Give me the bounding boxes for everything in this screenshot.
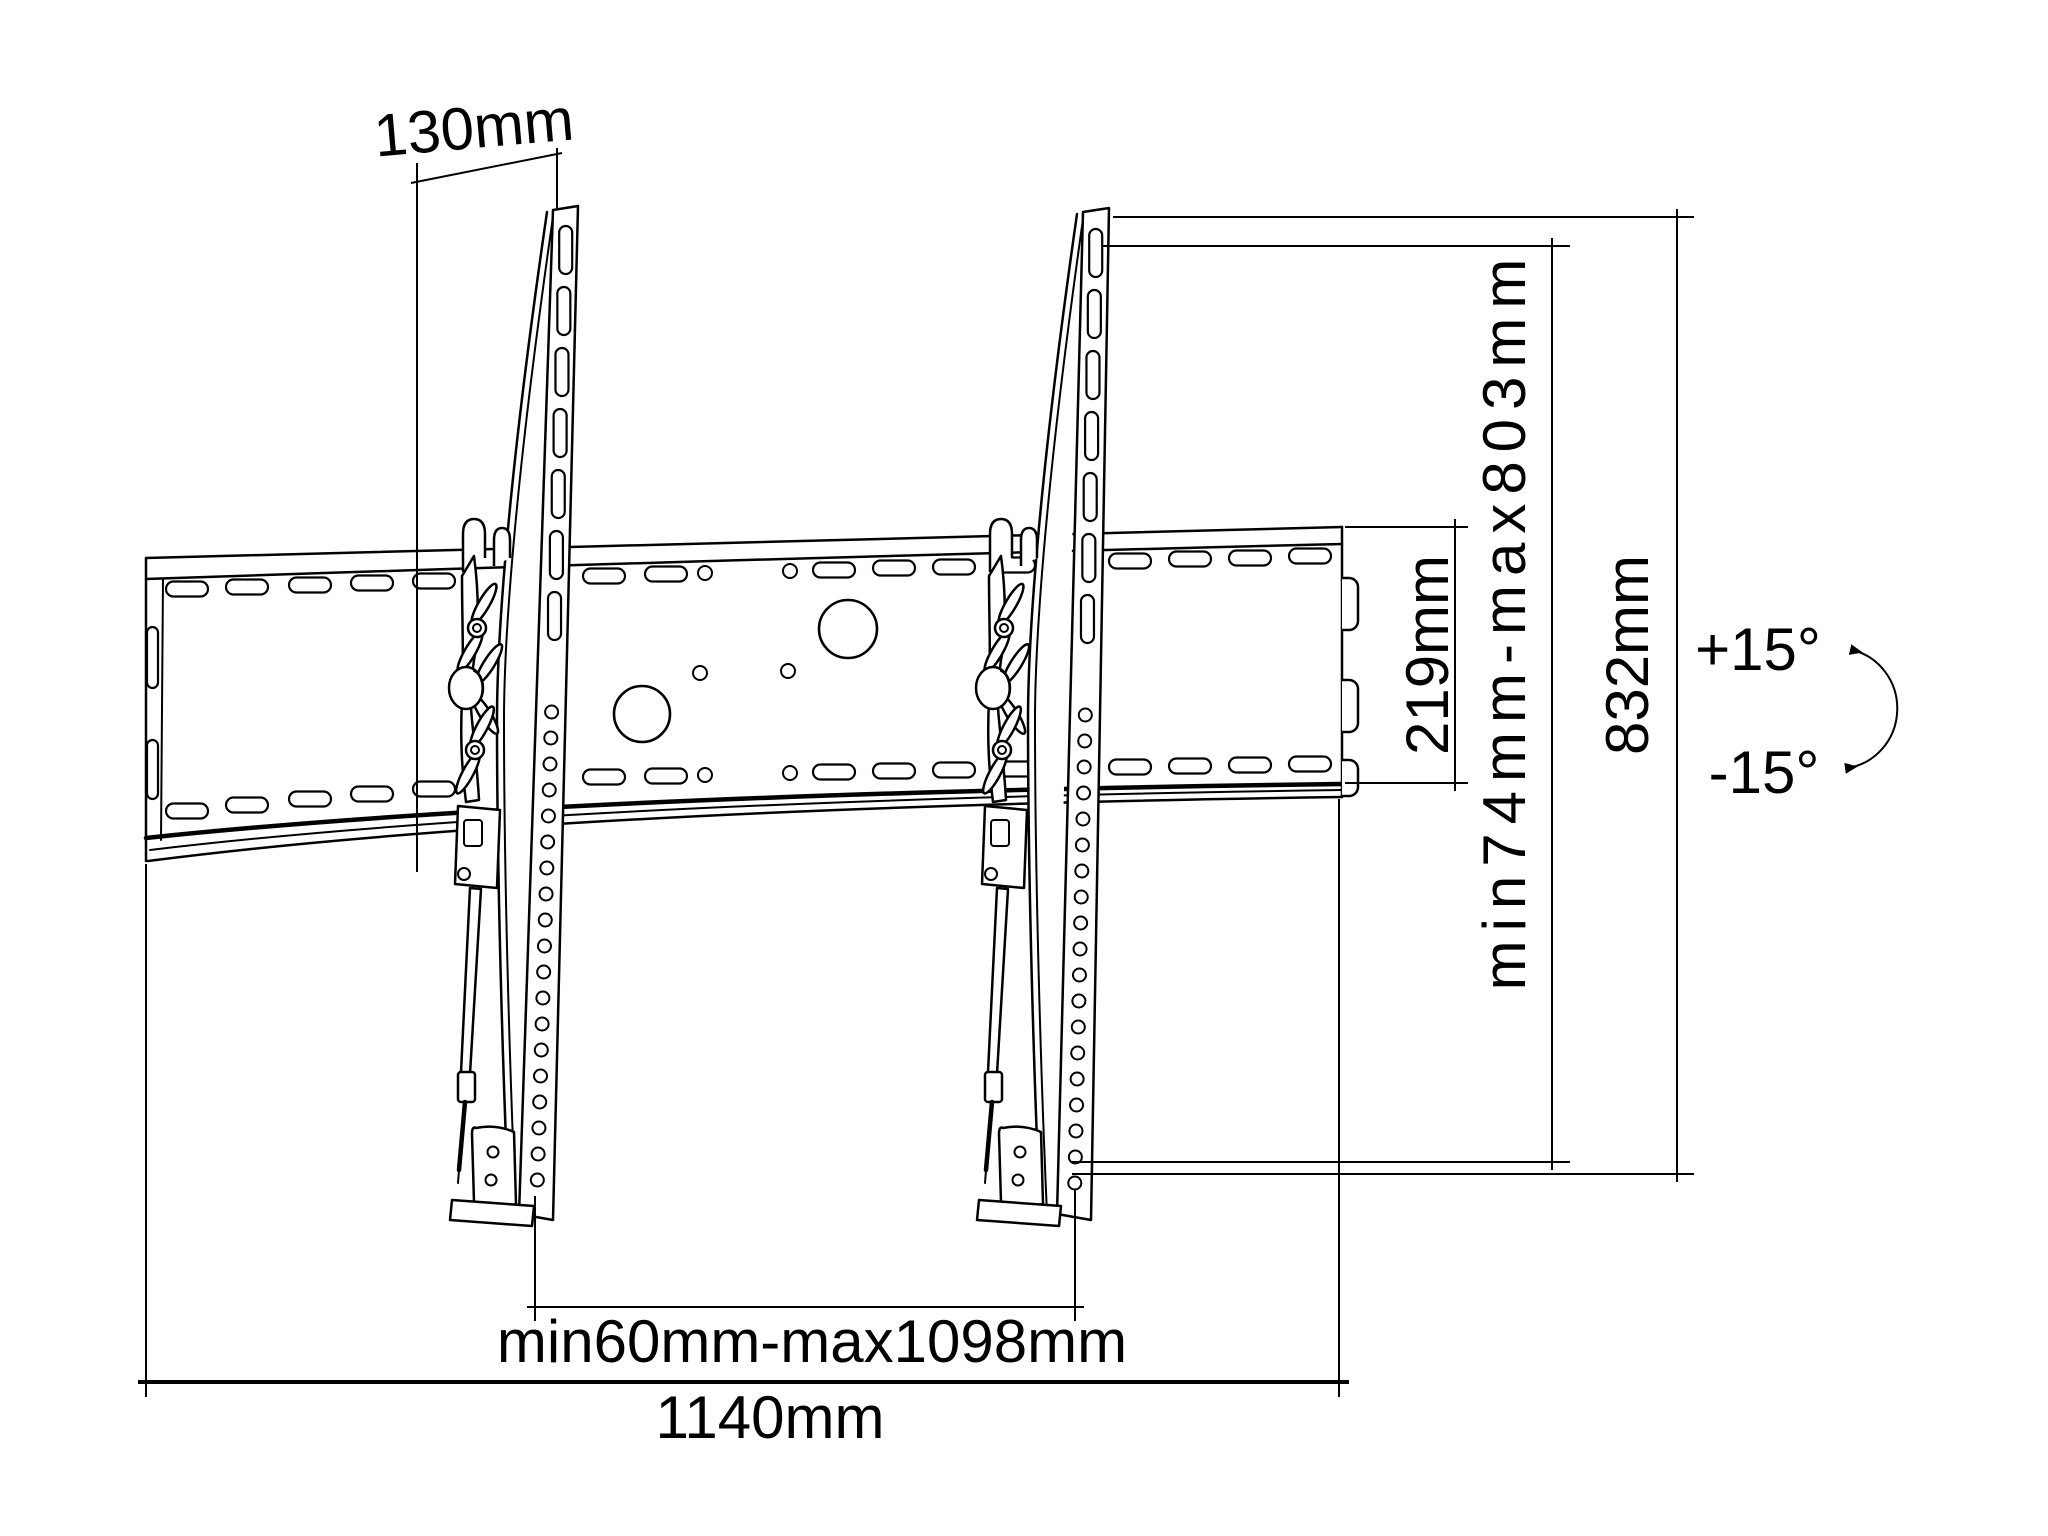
bracket-slot <box>1085 412 1098 460</box>
plate-slot <box>1229 758 1271 773</box>
plate-slot <box>813 765 855 780</box>
bracket-hole <box>544 732 557 745</box>
bracket-hole <box>541 836 554 849</box>
bracket-hole <box>538 940 551 953</box>
bracket-hole <box>1071 1047 1084 1060</box>
bracket-hole <box>1071 1073 1084 1086</box>
bracket-slot <box>1086 351 1099 399</box>
bracket-slot <box>1082 534 1095 582</box>
bracket-hole <box>532 1122 545 1135</box>
bracket-slot <box>1081 595 1094 643</box>
plate-small-hole <box>783 564 797 578</box>
dim-label-832mm: 832mm <box>1594 555 1661 755</box>
plate-slot <box>351 576 393 591</box>
bracket-hole <box>533 1096 546 1109</box>
tilt-down-label: -15° <box>1709 739 1820 806</box>
plate-slot <box>933 763 975 778</box>
bracket-hole <box>1076 813 1089 826</box>
bracket-hole <box>539 914 552 927</box>
plate-right-hooks <box>1342 578 1358 796</box>
plate-slot <box>1109 554 1151 569</box>
bracket-hole <box>544 758 557 771</box>
plate-small-hole <box>698 566 712 580</box>
tv-mount-dimension-diagram: 130mm 219mm min74mm-max803mm 832mm +15° … <box>0 0 2048 1536</box>
plate-slot <box>351 787 393 802</box>
bracket-hole <box>531 1174 544 1187</box>
plate-slot <box>645 567 687 582</box>
wall-plate <box>146 527 1358 861</box>
bracket-slot <box>1089 229 1102 277</box>
plate-slot <box>166 582 208 597</box>
left-tv-bracket <box>497 206 578 1220</box>
tilt-range-arrow-icon <box>1847 650 1897 768</box>
plate-slot <box>1169 552 1211 567</box>
plate-slot <box>1169 759 1211 774</box>
dim-label-1140mm: 1140mm <box>656 1384 885 1451</box>
bracket-slot <box>557 287 570 335</box>
plate-slot <box>1109 760 1151 775</box>
bracket-hole <box>1068 1177 1081 1190</box>
bracket-hole <box>1074 943 1087 956</box>
bracket-slot <box>554 409 567 457</box>
bracket-hole <box>1075 891 1088 904</box>
bracket-hole <box>1077 787 1090 800</box>
bracket-slot <box>552 470 565 518</box>
bracket-hole <box>1072 995 1085 1008</box>
rod-coupler <box>458 1072 475 1102</box>
plate-slot <box>583 569 625 584</box>
bracket-hole <box>1076 839 1089 852</box>
bracket-slot <box>548 592 561 640</box>
plate-slot <box>1289 549 1331 564</box>
bracket-hole <box>536 1018 549 1031</box>
bracket-hole <box>536 992 549 1005</box>
plate-slot <box>289 792 331 807</box>
bracket-hole <box>540 862 553 875</box>
bracket-hole <box>545 706 558 719</box>
tension-rod <box>459 1102 465 1170</box>
dim-label-min60-max1098: min60mm-max1098mm <box>497 1308 1127 1375</box>
plate-slot <box>813 563 855 578</box>
bracket-hole <box>1079 709 1092 722</box>
plate-slot <box>289 578 331 593</box>
plate-small-hole <box>783 766 797 780</box>
plate-slot <box>166 804 208 819</box>
plate-slot <box>873 561 915 576</box>
bracket-slot <box>555 348 568 396</box>
bottom-clamp <box>472 1127 516 1206</box>
plate-small-hole <box>781 664 795 678</box>
dim-label-219mm: 219mm <box>1394 555 1461 755</box>
bracket-hole <box>535 1044 548 1057</box>
plate-small-hole <box>698 768 712 782</box>
dim-label-min74-max803: min74mm-max803mm <box>1471 250 1538 991</box>
plate-slot <box>226 580 268 595</box>
bracket-slot <box>550 531 563 579</box>
plate-slot <box>583 770 625 785</box>
bracket-slot <box>1088 290 1101 338</box>
plate-slot <box>226 798 268 813</box>
bracket-hole <box>540 888 553 901</box>
plate-slot <box>413 782 455 797</box>
bracket-hole <box>1078 735 1091 748</box>
tilt-up-label: +15° <box>1695 616 1821 683</box>
bracket-hole <box>537 966 550 979</box>
plate-slot <box>1289 757 1331 772</box>
plate-slot <box>413 574 455 589</box>
bracket-hole <box>1074 917 1087 930</box>
bracket-hole <box>1069 1125 1082 1138</box>
bracket-hole <box>532 1148 545 1161</box>
plate-slot <box>873 764 915 779</box>
bracket-hole <box>1072 1021 1085 1034</box>
dim-plate-height-219mm: 219mm <box>1345 519 1468 791</box>
plate-slot <box>645 769 687 784</box>
tilt-annotation: +15° -15° <box>1695 616 1897 806</box>
bracket-hole <box>543 784 556 797</box>
bracket-hole <box>1073 969 1086 982</box>
bracket-hole <box>1075 865 1088 878</box>
technical-drawing-page: 130mm 219mm min74mm-max803mm 832mm +15° … <box>0 0 2048 1536</box>
plate-end-slot <box>147 627 158 688</box>
bracket-hole <box>534 1070 547 1083</box>
plate-small-hole <box>693 666 707 680</box>
bracket-slot <box>559 226 572 274</box>
plate-end-slot <box>147 740 158 799</box>
bracket-hole <box>1070 1099 1083 1112</box>
plate-slot <box>1229 551 1271 566</box>
bracket-hole <box>542 810 555 823</box>
bracket-slot <box>1084 473 1097 521</box>
bracket-hole <box>1078 761 1091 774</box>
plate-slot <box>933 560 975 575</box>
